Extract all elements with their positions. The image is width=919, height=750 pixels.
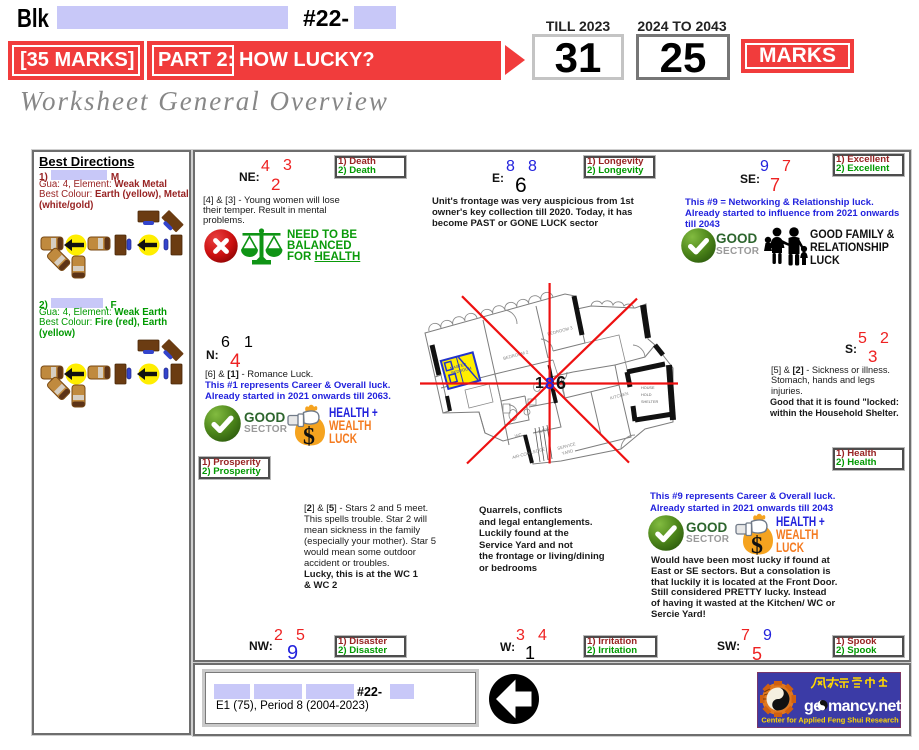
svg-text:KITCHEN: KITCHEN bbox=[610, 391, 630, 401]
svg-text:Center for Applied Feng Shui R: Center for Applied Feng Shui Research bbox=[761, 716, 899, 725]
svg-text:HOUSE: HOUSE bbox=[641, 386, 655, 390]
svg-text:$: $ bbox=[303, 424, 315, 447]
svg-text:HOLD: HOLD bbox=[641, 393, 652, 397]
svg-text:mancy.net: mancy.net bbox=[828, 698, 901, 715]
svg-text:WC: WC bbox=[514, 432, 522, 439]
svg-text:SHELTER: SHELTER bbox=[641, 400, 658, 404]
svg-text:BEDROOM 3: BEDROOM 3 bbox=[547, 325, 574, 337]
